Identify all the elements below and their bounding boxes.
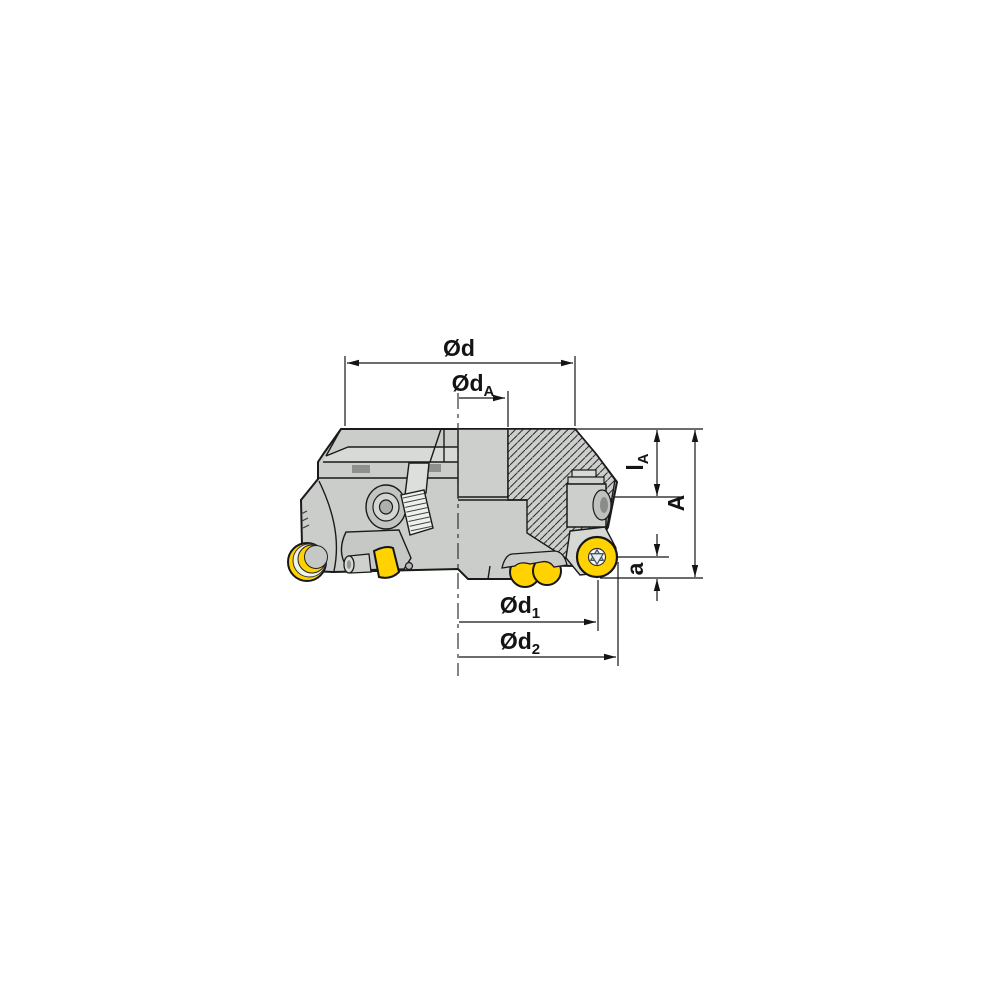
ledge-slot-left <box>352 465 370 473</box>
label-a: a <box>622 562 648 575</box>
label-dA: ØdA <box>452 370 495 400</box>
ledge-slot-right <box>428 464 441 472</box>
clamp-boss <box>366 485 406 529</box>
dimension-d1: Ød1 <box>459 580 598 631</box>
inserts-bottom-center <box>502 551 567 587</box>
insert-right-main <box>566 527 617 577</box>
clamp-screw <box>344 554 371 573</box>
right-pocket-block <box>567 484 611 527</box>
label-lA: lA <box>622 453 652 470</box>
label-A: A <box>663 495 689 512</box>
insert-far-left <box>288 543 328 581</box>
dimension-dA: ØdA <box>452 370 508 427</box>
label-d: Ød <box>443 335 475 361</box>
pocket-cap-upper <box>572 470 596 477</box>
dimension-a: a <box>617 534 669 601</box>
pocket-cap-lower <box>568 477 604 484</box>
milling-cutter-diagram: Ød ØdA Ød1 Ød2 lA <box>0 0 1000 1000</box>
label-d2: Ød2 <box>500 628 540 658</box>
technical-drawing-page: Ød ØdA Ød1 Ød2 lA <box>0 0 1000 1000</box>
arbor-bore <box>458 429 508 497</box>
label-d1: Ød1 <box>500 592 540 622</box>
cartridge-screw-dot <box>406 563 413 570</box>
cutter-body <box>288 429 617 587</box>
